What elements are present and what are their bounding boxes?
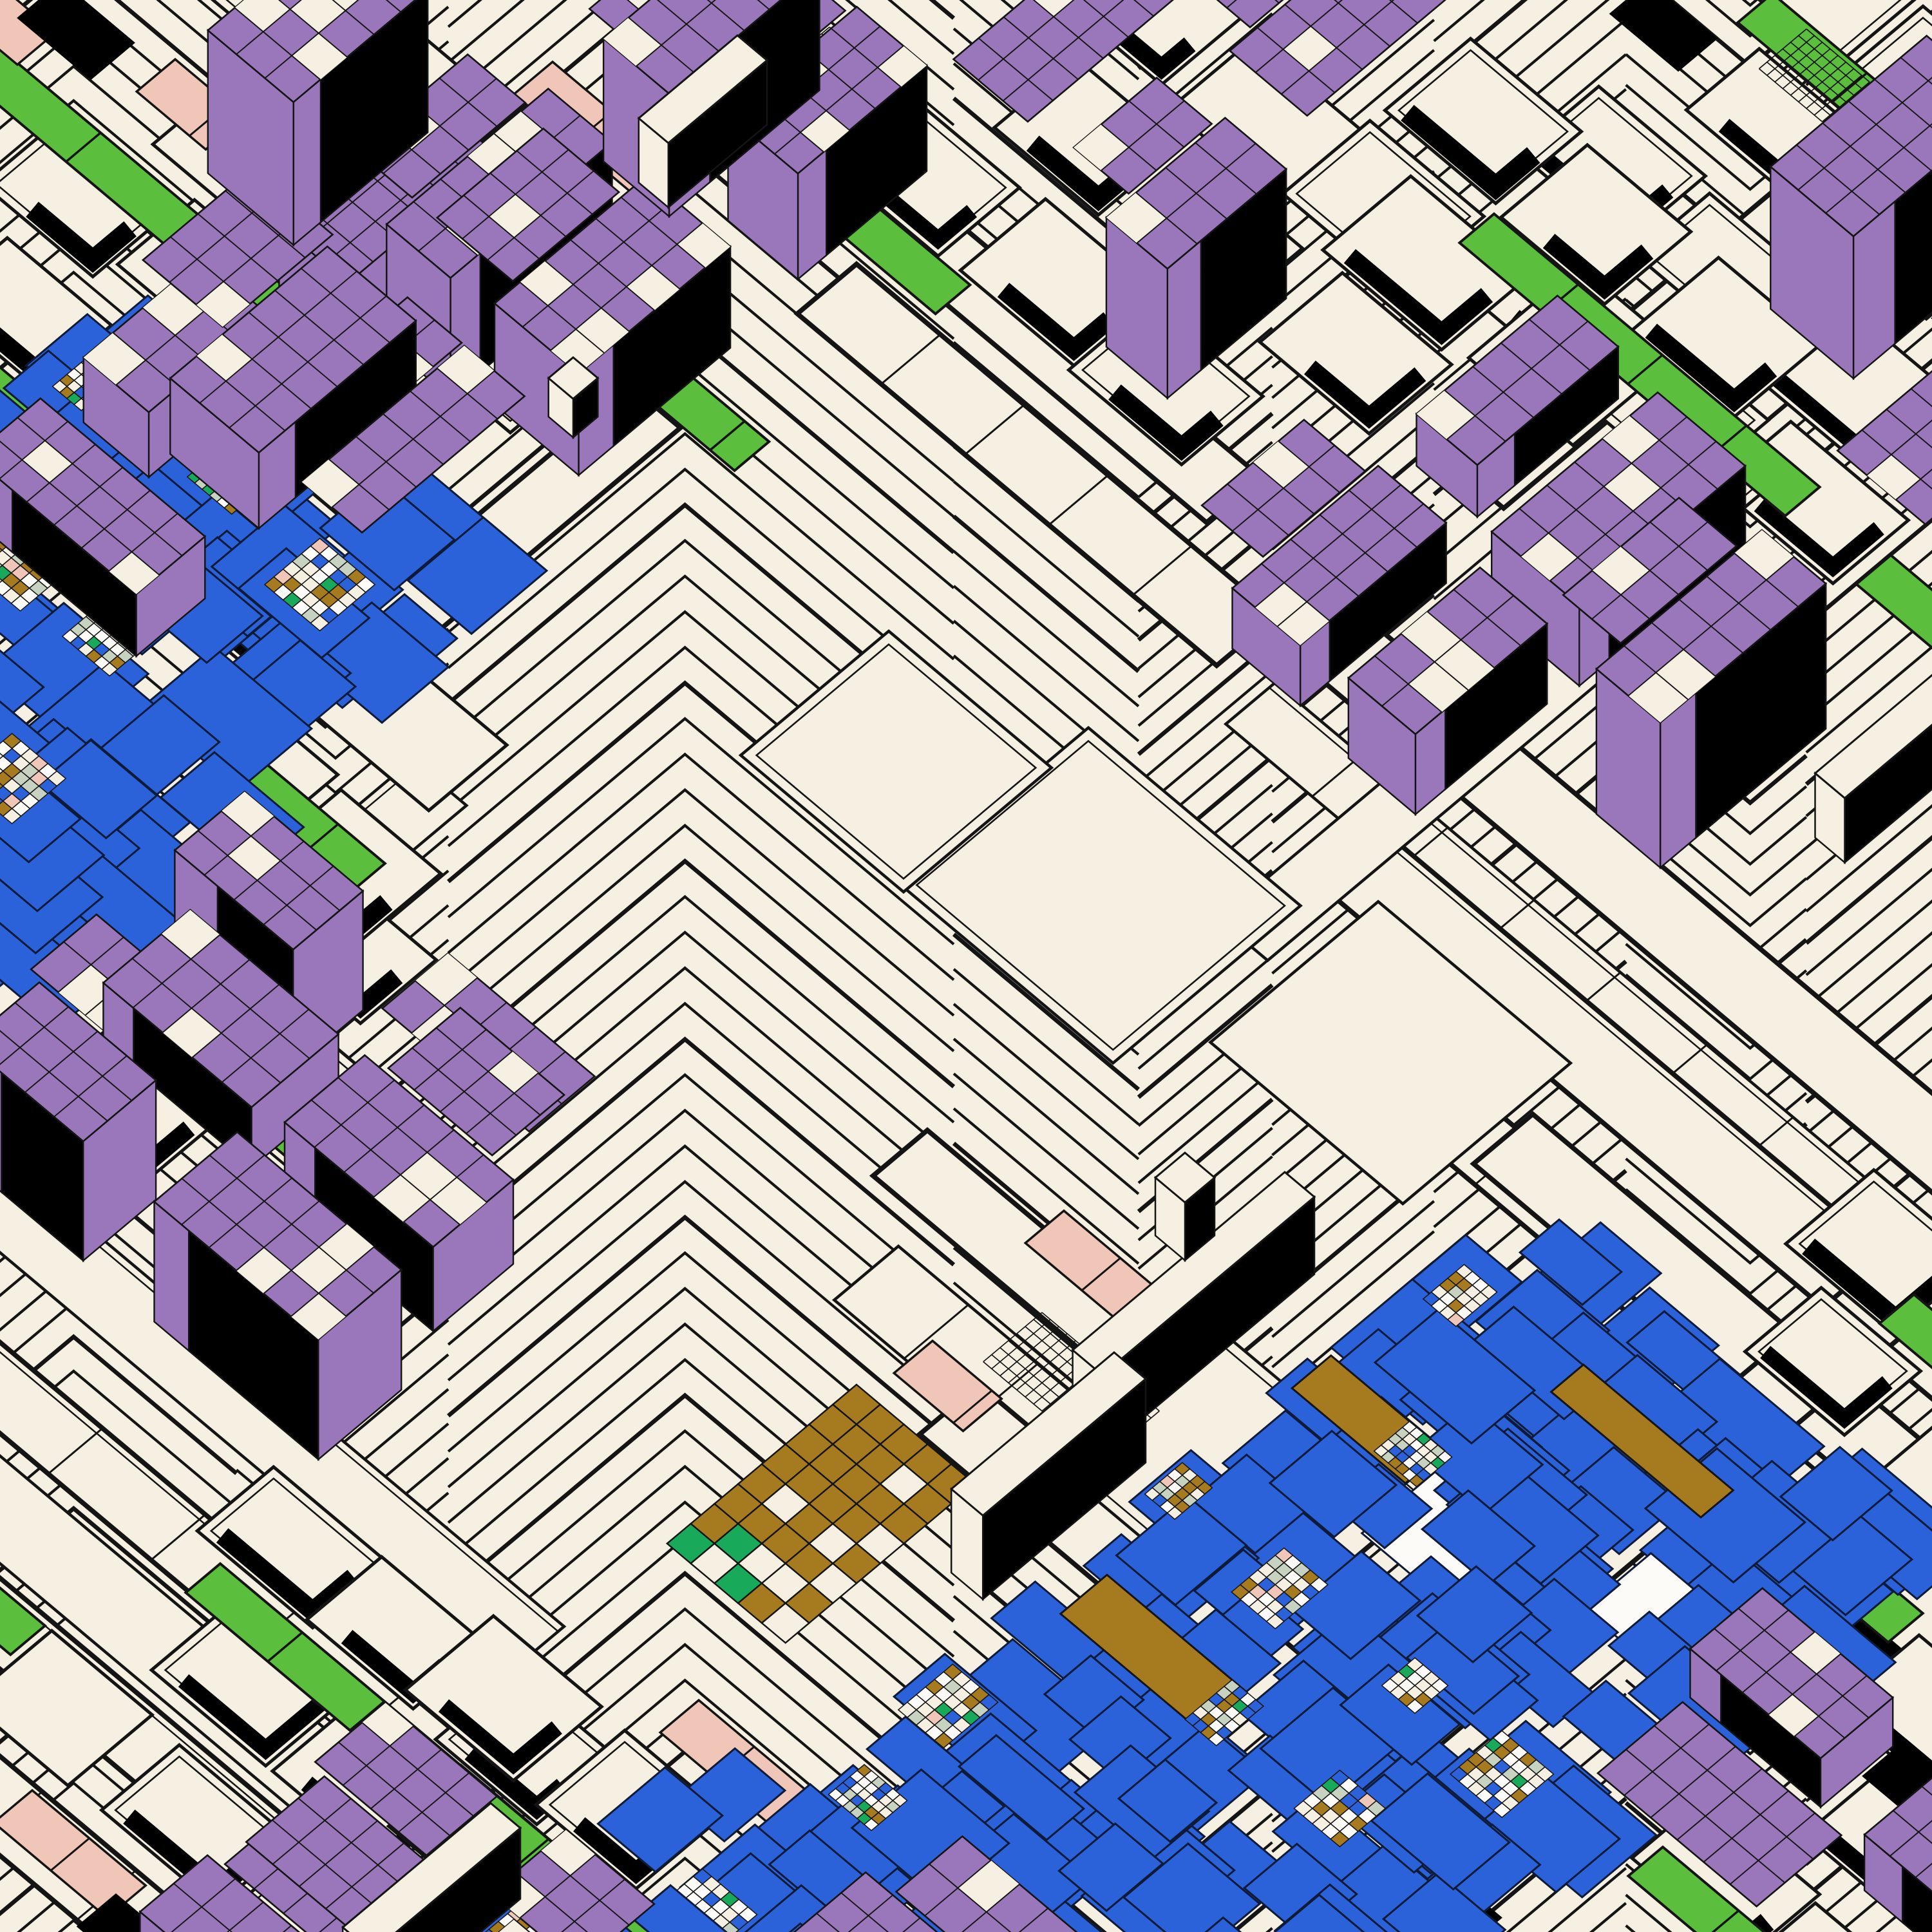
generative-artwork-canvas: [0, 0, 1932, 1932]
artwork-container: [0, 0, 1932, 1932]
